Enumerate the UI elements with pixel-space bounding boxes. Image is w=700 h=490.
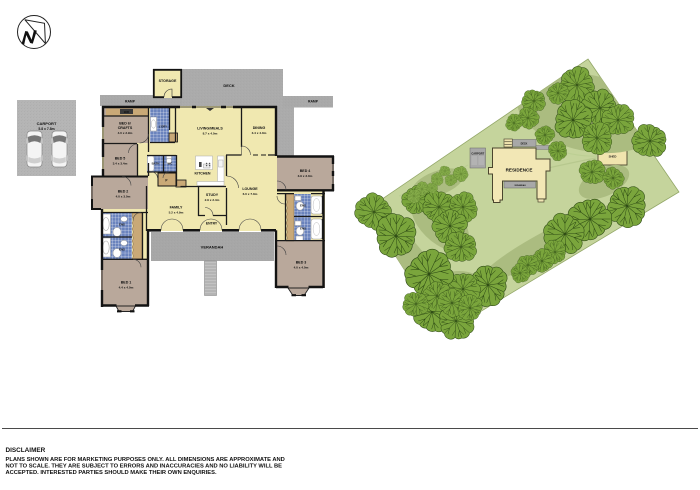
svg-text:DECK: DECK: [521, 142, 528, 145]
svg-text:RAMP: RAMP: [308, 100, 319, 104]
svg-text:DISCLAIMER: DISCLAIMER: [6, 447, 46, 454]
svg-text:DECK: DECK: [223, 83, 234, 88]
svg-text:BIR: BIR: [124, 110, 130, 114]
svg-text:3.4 x 3.4m: 3.4 x 3.4m: [113, 162, 128, 166]
svg-text:VERANDAH: VERANDAH: [514, 184, 526, 187]
svg-text:BED 5: BED 5: [115, 157, 126, 161]
svg-text:RESIDENCE: RESIDENCE: [506, 168, 533, 173]
svg-text:CARPORT: CARPORT: [471, 152, 484, 156]
svg-text:ENTRY: ENTRY: [206, 222, 218, 226]
svg-text:2.9 x 2.4m: 2.9 x 2.4m: [205, 198, 220, 202]
svg-text:VERANDAH: VERANDAH: [201, 245, 224, 250]
svg-text:DINING: DINING: [253, 126, 266, 130]
svg-text:CARPORT: CARPORT: [37, 121, 57, 126]
svg-text:5.2 x 4.9m: 5.2 x 4.9m: [169, 211, 184, 215]
svg-text:ENS: ENS: [119, 223, 125, 227]
svg-text:ENS: ENS: [300, 204, 306, 208]
svg-text:PLANS SHOWN ARE FOR MARKETING: PLANS SHOWN ARE FOR MARKETING PURPOSES O…: [6, 457, 285, 463]
svg-text:ENS: ENS: [119, 248, 125, 252]
svg-text:4.0 x 4.0m: 4.0 x 4.0m: [294, 266, 309, 270]
svg-text:BED 3: BED 3: [296, 261, 307, 265]
svg-text:RAMP: RAMP: [125, 99, 136, 103]
svg-text:3.4 x 4.0m: 3.4 x 4.0m: [252, 131, 267, 135]
svg-text:5.8 x 7.8m: 5.8 x 7.8m: [38, 127, 54, 131]
svg-text:6.0 x 7.0m: 6.0 x 7.0m: [243, 192, 258, 196]
svg-text:3.9 x 3.0m: 3.9 x 3.0m: [298, 174, 313, 178]
svg-text:NOT TO SCALE. THEY ARE SUBJECT: NOT TO SCALE. THEY ARE SUBJECT TO ERRORS…: [6, 464, 283, 470]
svg-text:BED 4: BED 4: [300, 169, 311, 173]
svg-text:ENS: ENS: [300, 227, 306, 231]
svg-text:BED 1: BED 1: [121, 281, 132, 285]
svg-text:FAMILY: FAMILY: [170, 206, 183, 210]
svg-text:SHED: SHED: [609, 155, 617, 159]
svg-text:STUDY: STUDY: [206, 193, 219, 197]
svg-text:L'DRY: L'DRY: [159, 125, 168, 129]
svg-text:4.0 x 2.9m: 4.0 x 2.9m: [118, 131, 133, 135]
svg-text:8.7 x 4.0m: 8.7 x 4.0m: [203, 132, 218, 136]
svg-text:CRAFTS: CRAFTS: [118, 126, 133, 130]
svg-text:4.0 x 3.0m: 4.0 x 3.0m: [116, 195, 131, 199]
svg-text:ACCEPTED. INTERESTED PARTIES S: ACCEPTED. INTERESTED PARTIES SHOULD MAKE…: [6, 470, 217, 476]
svg-text:BATH: BATH: [152, 162, 160, 166]
svg-text:KITCHEN: KITCHEN: [195, 172, 211, 176]
svg-text:BED 2: BED 2: [118, 190, 129, 194]
svg-text:LOUNGE: LOUNGE: [242, 187, 258, 191]
svg-text:BED 6/: BED 6/: [119, 122, 131, 126]
svg-text:LIVING/MEALS: LIVING/MEALS: [197, 127, 223, 131]
svg-text:STORAGE: STORAGE: [159, 79, 177, 83]
svg-text:4.4 x 4.0m: 4.4 x 4.0m: [119, 286, 134, 290]
